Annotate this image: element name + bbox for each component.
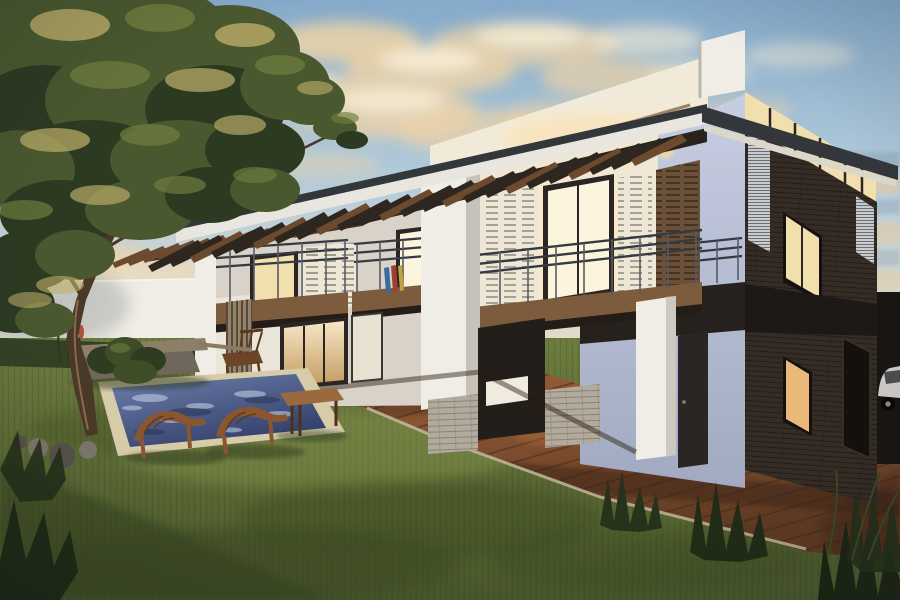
architectural-render [0, 0, 900, 600]
render-canvas [0, 0, 900, 600]
vignette [0, 0, 900, 600]
